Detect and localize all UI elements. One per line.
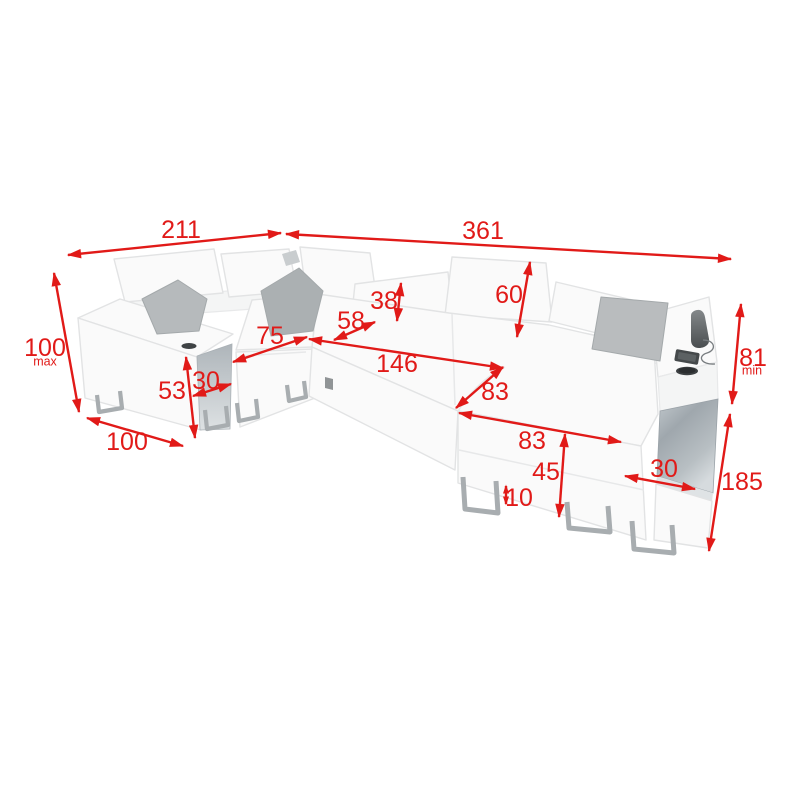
dimension-left-side-depth: 100: [87, 418, 183, 456]
dimension-value: 45: [532, 458, 560, 486]
block-foot: [325, 377, 333, 390]
dimension-value: 30: [650, 455, 678, 483]
dimension-value: 30: [192, 367, 220, 395]
dimension-value: 58: [337, 307, 365, 335]
dimension-back-width-left: 211: [68, 216, 281, 255]
dimension-value: 60: [495, 281, 523, 309]
dimension-value: 38: [370, 287, 398, 315]
pillow: [592, 297, 668, 361]
dimension-value: 185: [721, 468, 763, 496]
dimension-value: 146: [376, 350, 418, 378]
cup-holder-icon: [676, 367, 698, 375]
dimension-total-depth-right: 185: [709, 414, 763, 551]
dimension-armrest-height-min: 81min: [732, 304, 767, 404]
dimension-value: 53: [158, 377, 186, 405]
dimension-value: 83: [518, 427, 546, 455]
dimension-value: 361: [462, 217, 504, 245]
dimension-value: 75: [256, 322, 284, 350]
dimension-value: 10: [505, 484, 533, 512]
dimension-value: 211: [161, 216, 201, 244]
sofa-dimension-diagram: 211361100max1005330755838146608383451030…: [0, 0, 800, 800]
dimension-leg-height: 10: [505, 484, 533, 512]
cup-holder-icon: [182, 343, 197, 349]
dimension-value: 100: [106, 428, 148, 456]
dimension-qualifier: min: [742, 364, 762, 378]
dimension-qualifier: max: [33, 355, 57, 369]
dimension-value: 83: [481, 378, 509, 406]
dimension-backrest-height-max: 100max: [24, 273, 79, 412]
diagram-canvas: 211361100max1005330755838146608383451030…: [0, 0, 800, 800]
